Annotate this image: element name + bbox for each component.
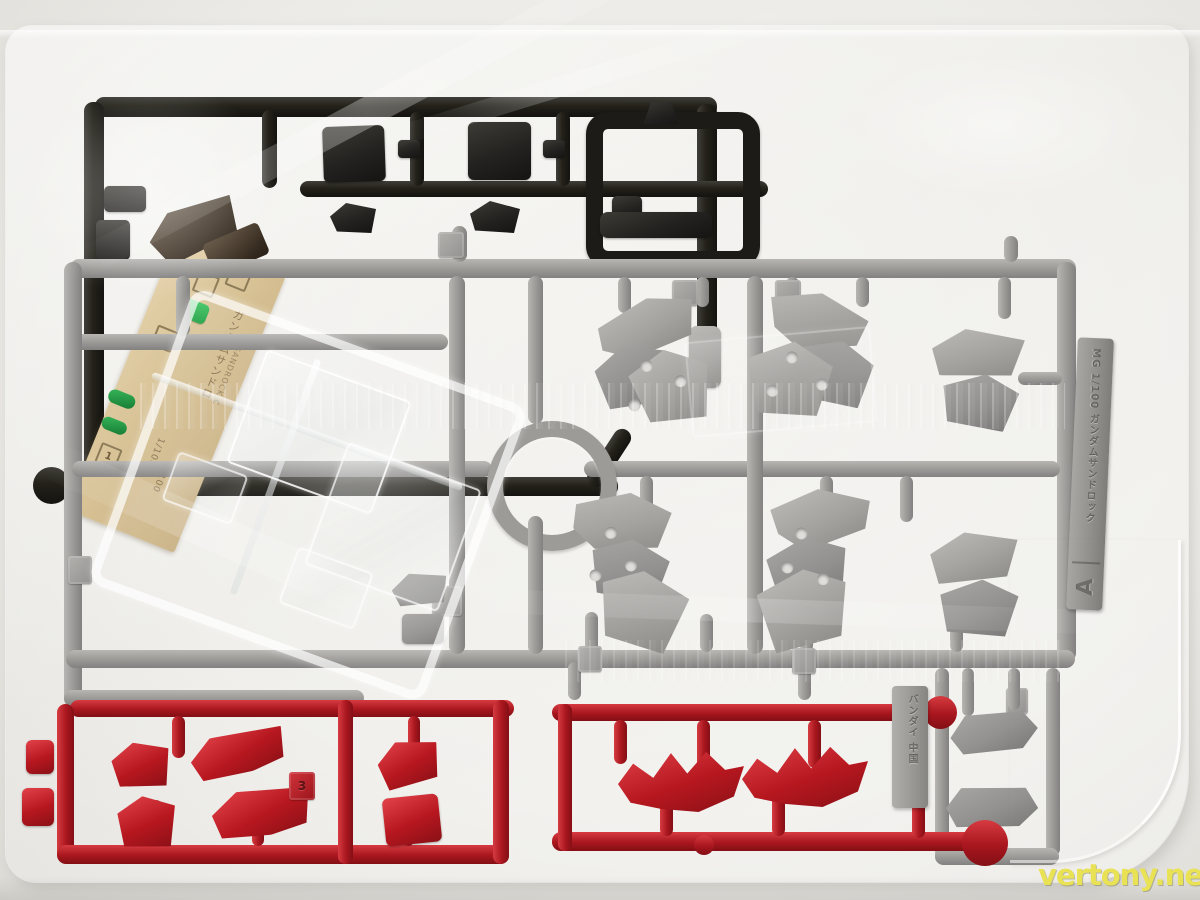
sprue-rail bbox=[57, 704, 74, 862]
sprue-rail bbox=[584, 461, 1060, 477]
sprue-rail bbox=[64, 262, 82, 708]
gate-number-tab bbox=[438, 232, 464, 258]
bag-soft-sheen bbox=[850, 50, 1150, 200]
gate-stub bbox=[998, 277, 1011, 319]
photo-model-kit-runners-in-bag: 2 1 ガンダムサンドロ W SANDROCK C 1/100 1/100 bbox=[0, 0, 1200, 900]
molded-part bbox=[22, 788, 54, 826]
gate-number: 3 bbox=[298, 779, 306, 793]
sprue-end-cap bbox=[962, 820, 1008, 866]
molded-part bbox=[26, 740, 54, 774]
sprue-rail bbox=[1004, 236, 1018, 262]
sprue-rail bbox=[558, 704, 572, 851]
molded-part bbox=[382, 793, 443, 847]
sprue-rail bbox=[70, 700, 514, 717]
bag-soft-sheen bbox=[20, 80, 280, 300]
gate-number-tab bbox=[68, 556, 92, 584]
bag-texture-band bbox=[135, 383, 1065, 429]
gate-stub bbox=[900, 476, 913, 522]
armor-plate bbox=[940, 578, 1021, 640]
molded-part bbox=[398, 140, 420, 158]
armor-part-cluster bbox=[729, 481, 903, 661]
foil-sticker-green bbox=[100, 415, 129, 437]
bag-texture-band bbox=[560, 640, 1060, 682]
sprue-rail bbox=[338, 700, 353, 864]
gate-number-tab: 3 bbox=[289, 772, 315, 800]
sprue-rail bbox=[493, 700, 509, 864]
sprue-rail bbox=[528, 516, 543, 654]
armor-plate bbox=[930, 327, 1025, 381]
table-edge-shadow bbox=[0, 876, 1200, 900]
armor-part-cluster bbox=[551, 485, 719, 662]
gate-dot bbox=[694, 835, 714, 855]
molded-part bbox=[600, 212, 712, 238]
molded-part bbox=[468, 122, 531, 180]
molded-part bbox=[322, 125, 386, 183]
maker-tag-embossed-text: バンダイ 中国 bbox=[904, 694, 919, 802]
bag-top-edge bbox=[0, 30, 1200, 38]
gate-stub bbox=[172, 716, 185, 758]
runner-tab-embossed-text: MG 1/100 ガンダムサンドロック bbox=[1079, 348, 1103, 558]
collar-frame-part bbox=[586, 112, 760, 268]
molded-part bbox=[543, 140, 565, 158]
sprue-rail bbox=[552, 704, 934, 721]
sprue-end-cap bbox=[924, 696, 957, 729]
foil-sticker-green bbox=[106, 387, 137, 410]
maker-tag: バンダイ 中国 bbox=[892, 686, 928, 808]
watermark-text: vertony.net bbox=[1038, 858, 1200, 892]
armor-plate bbox=[929, 530, 1019, 585]
gate-stub bbox=[614, 720, 627, 764]
sprue-rail bbox=[57, 845, 509, 864]
